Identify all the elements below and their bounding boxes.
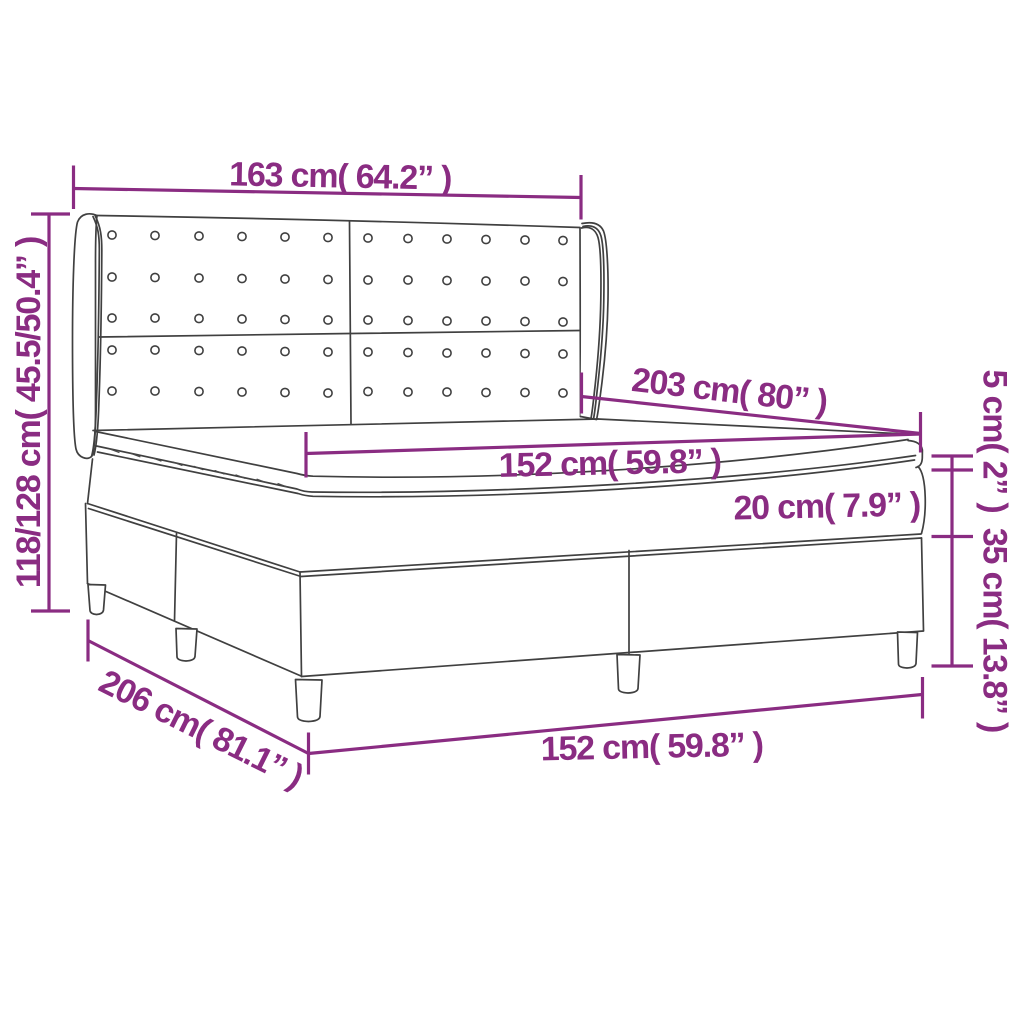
svg-text:35 cm( 13.8” ): 35 cm( 13.8” ) — [976, 528, 1014, 732]
svg-text:5 cm( 2” ): 5 cm( 2” ) — [976, 370, 1014, 513]
svg-text:152 cm( 59.8” ): 152 cm( 59.8” ) — [540, 726, 763, 769]
svg-text:118/128 cm( 45.5/50.4” ): 118/128 cm( 45.5/50.4” ) — [10, 237, 48, 588]
svg-text:20 cm( 7.9” ): 20 cm( 7.9” ) — [733, 486, 920, 528]
svg-text:163 cm( 64.2” ): 163 cm( 64.2” ) — [229, 155, 452, 197]
svg-text:152 cm( 59.8” ): 152 cm( 59.8” ) — [498, 442, 721, 485]
